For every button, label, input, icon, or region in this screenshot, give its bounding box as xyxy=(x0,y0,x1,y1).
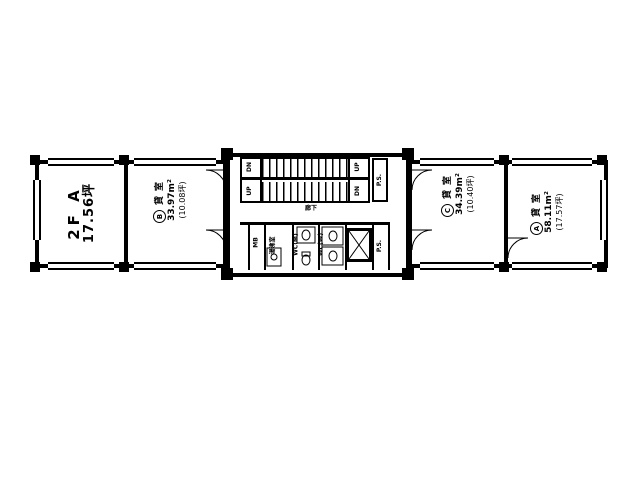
toilet-women-icon xyxy=(322,227,343,265)
room-a-area-m2: 58.11m² xyxy=(544,191,554,233)
room-a-label: A 貸室 58.11m² (17.57坪) xyxy=(524,175,570,249)
room-c-label: C 貸室 34.39m² (10.40坪) xyxy=(435,157,481,231)
room-c-type: 貸室 xyxy=(443,171,453,199)
room-b-mark: B xyxy=(153,210,166,223)
sink-icon xyxy=(267,248,281,266)
door-arc-room-b xyxy=(206,170,226,250)
room-b-label: B 貸室 33.97m² (10.08坪) xyxy=(147,163,193,237)
unit-label-line2: 17.56坪 xyxy=(83,183,98,243)
toilet-men-icon xyxy=(297,227,315,265)
room-c-area-tsubo: (10.40坪) xyxy=(466,175,475,212)
room-c-mark: C xyxy=(441,204,454,217)
unit-label: 2F A 17.56坪 xyxy=(59,153,105,273)
elevator-x-icon xyxy=(349,231,369,259)
room-a-area-tsubo: (17.57坪) xyxy=(555,193,564,230)
room-a-mark: A xyxy=(530,222,543,235)
room-b-area-m2: 33.97m² xyxy=(167,179,177,221)
room-b-area-tsubo: (10.08坪) xyxy=(178,181,187,218)
door-arc-room-c xyxy=(412,170,432,250)
room-b-type: 貸室 xyxy=(155,177,165,205)
unit-label-line1: 2F A xyxy=(66,186,83,240)
room-c-area-m2: 34.39m² xyxy=(455,173,465,215)
floor-plan: DN UP UP DN P.S. 廊下 MB 湯沸室 WC(M) WC(W) P… xyxy=(0,0,640,480)
room-a-type: 貸室 xyxy=(532,189,542,217)
